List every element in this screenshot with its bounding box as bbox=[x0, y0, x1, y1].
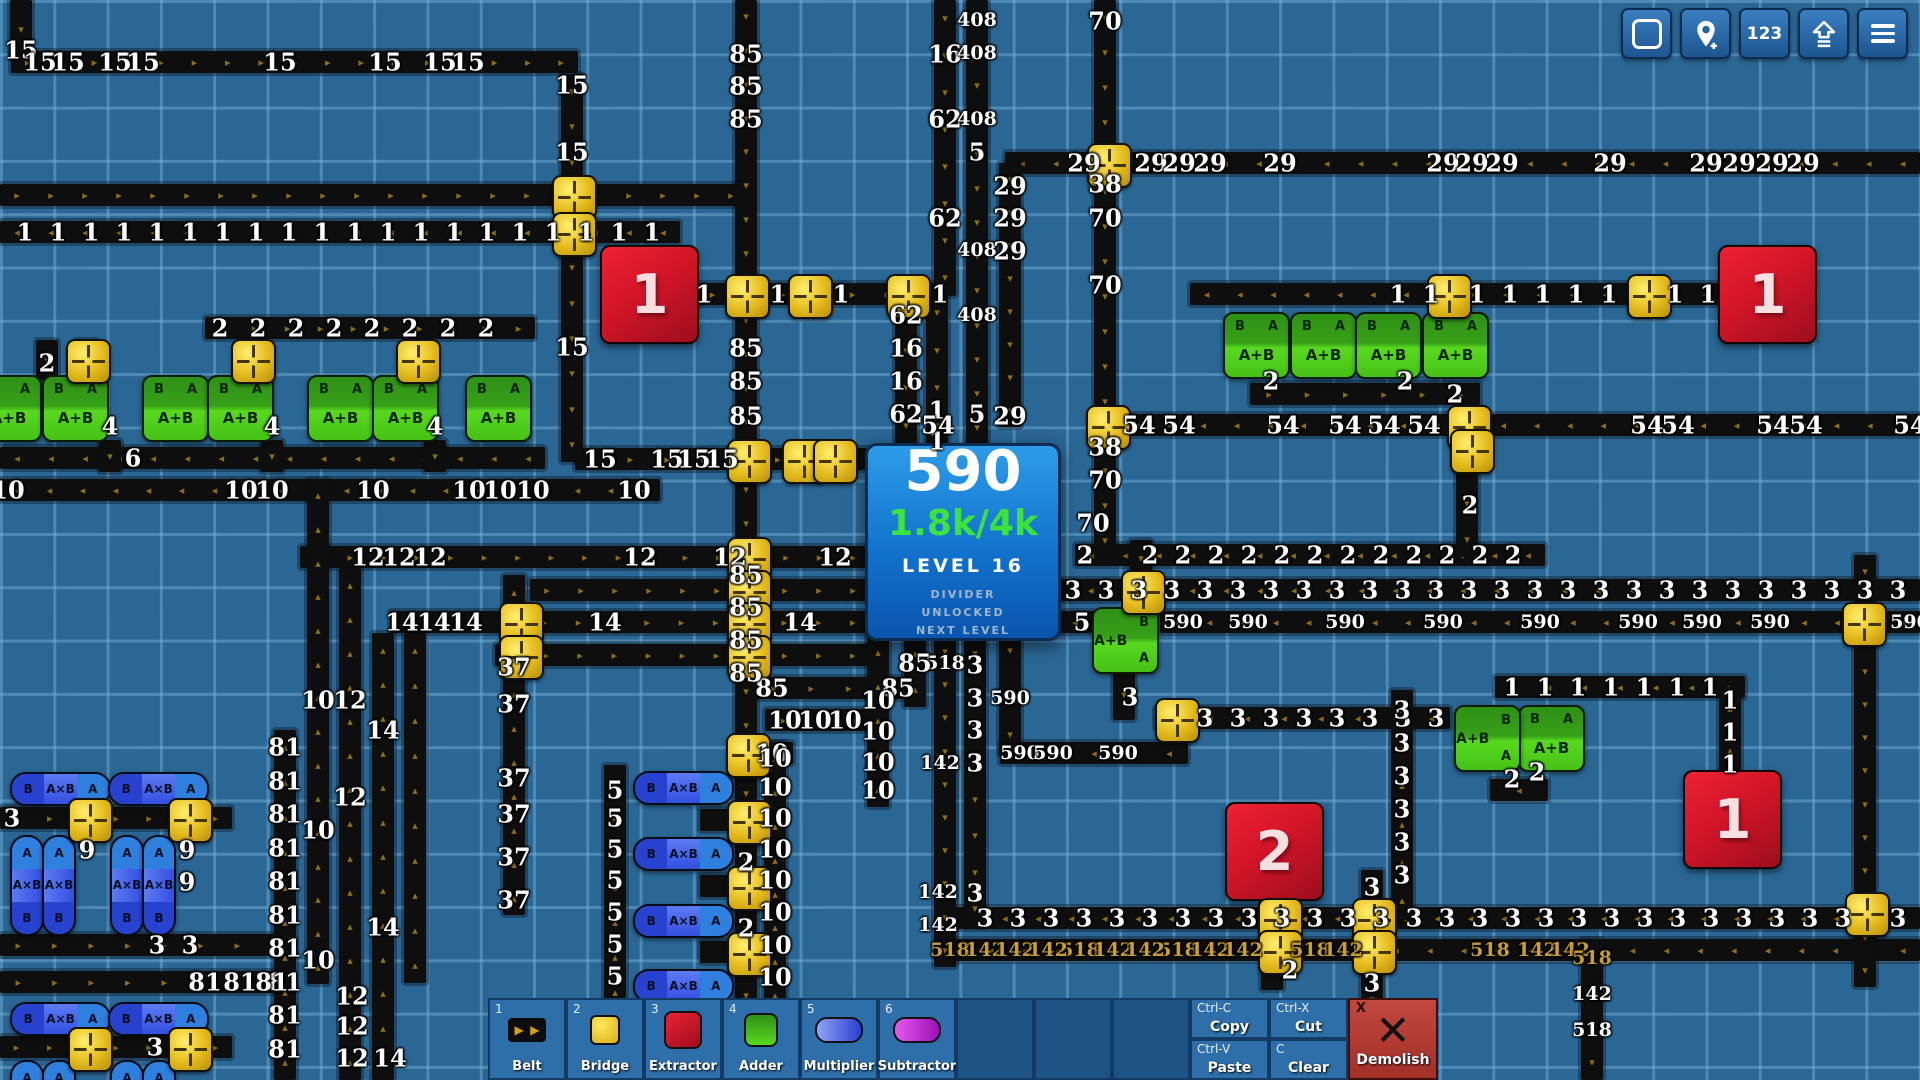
conveyor-belt[interactable]: ◂◂◂◂◂◂◂◂◂◂◂◂◂◂◂◂◂◂◂◂ bbox=[0, 479, 660, 501]
belt-value-label: 85 bbox=[729, 402, 762, 431]
belt-value-label: 1 bbox=[1601, 280, 1618, 309]
adder-block[interactable]: BAA+B bbox=[465, 375, 532, 442]
belt-value-label: 3 bbox=[1692, 576, 1709, 605]
belt-value-label: 3 bbox=[1010, 904, 1027, 933]
belt-value-label: 5 bbox=[607, 962, 624, 991]
adder-block[interactable]: BAA+B bbox=[307, 375, 374, 442]
multiplier-block[interactable]: AA×BB bbox=[42, 835, 76, 936]
belt-value-label: 10 bbox=[861, 776, 894, 805]
menu-button[interactable] bbox=[1857, 8, 1908, 59]
belt-value-label: 5 bbox=[969, 400, 986, 429]
belt-value-label: 1 bbox=[215, 218, 232, 247]
belt-value-label: 9 bbox=[179, 836, 196, 865]
belt-value-label: 3 bbox=[967, 716, 984, 745]
belt-value-label: 1 bbox=[149, 218, 166, 247]
belt-value-label: 408 bbox=[957, 304, 997, 326]
belt-value-label: 3 bbox=[1362, 576, 1379, 605]
clear-button[interactable]: C Clear bbox=[1269, 1039, 1348, 1080]
belt-value-label: 3 bbox=[1637, 904, 1654, 933]
multiplier-icon bbox=[815, 1017, 863, 1043]
belt-value-label: 9 bbox=[179, 868, 196, 897]
demolish-button[interactable]: X ✕ Demolish bbox=[1348, 998, 1438, 1080]
belt-value-label: 15 bbox=[583, 445, 616, 474]
conveyor-belt[interactable]: ▾ bbox=[424, 440, 446, 472]
belt-icon: ▶▶ bbox=[508, 1018, 546, 1042]
belt-value-label: 1 bbox=[1722, 686, 1739, 715]
belt-value-label: 3 bbox=[1373, 904, 1390, 933]
belt-value-label: 590 bbox=[1163, 611, 1203, 633]
bridge-icon bbox=[590, 1015, 620, 1045]
belt-value-label: 10 bbox=[301, 946, 334, 975]
conveyor-belt[interactable]: ▴▴▴▴▴▴▴▴▴▴▴▴▴ bbox=[372, 633, 394, 1080]
belt-value-label: 14 bbox=[366, 716, 399, 745]
belt-value-label: 37 bbox=[497, 843, 530, 872]
belt-value-label: 3 bbox=[4, 804, 21, 833]
belt-value-label: 10 bbox=[758, 963, 791, 992]
belt-value-label: 9 bbox=[79, 836, 96, 865]
belt-value-label: 1 bbox=[380, 218, 397, 247]
belt-value-label: 29 bbox=[1485, 149, 1518, 178]
belt-bridge[interactable] bbox=[1842, 602, 1887, 647]
cut-button[interactable]: Ctrl-X Cut bbox=[1269, 998, 1348, 1039]
belt-bridge[interactable] bbox=[788, 274, 833, 319]
belt-value-label: 14 bbox=[366, 913, 399, 942]
belt-value-label: 590 bbox=[1750, 611, 1790, 633]
belt-value-label: 14 bbox=[373, 1044, 406, 1073]
belt-value-label: 54 bbox=[1162, 411, 1195, 440]
conveyor-belt[interactable]: ▸▸▸▸▸▸▸▸ bbox=[0, 934, 292, 956]
belt-value-label: 1 bbox=[770, 280, 787, 309]
belt-value-label: 12 bbox=[335, 982, 368, 1011]
belt-value-label: 142 bbox=[1223, 939, 1263, 961]
belt-value-label: 15 bbox=[126, 48, 159, 77]
toggle-numbers-button[interactable]: 123 bbox=[1739, 8, 1790, 59]
belt-value-label: 2 bbox=[1077, 541, 1094, 570]
extractor-block[interactable]: 1 bbox=[600, 245, 699, 344]
belt-value-label: 3 bbox=[1394, 762, 1411, 791]
belt-value-label: 3 bbox=[1659, 576, 1676, 605]
belt-value-label: 2 bbox=[326, 314, 343, 343]
belt-value-label: 142 bbox=[920, 752, 960, 774]
adder-block[interactable]: A+BBA bbox=[1454, 705, 1521, 772]
belt-value-label: 6 bbox=[125, 444, 142, 473]
belt-value-label: 2 bbox=[1373, 541, 1390, 570]
belt-value-label: 3 bbox=[1604, 904, 1621, 933]
belt-value-label: 3 bbox=[1296, 704, 1313, 733]
belt-value-label: 10 bbox=[768, 706, 801, 735]
belt-value-label: 54 bbox=[1266, 411, 1299, 440]
belt-bridge[interactable] bbox=[68, 1027, 113, 1072]
belt-value-label: 85 bbox=[729, 626, 762, 655]
belt-bridge[interactable] bbox=[66, 339, 111, 384]
belt-value-label: 3 bbox=[967, 749, 984, 778]
multiplier-block[interactable]: BA×BA bbox=[633, 904, 734, 938]
belt-value-label: 3 bbox=[1890, 576, 1907, 605]
belt-value-label: 3 bbox=[1329, 576, 1346, 605]
copy-button[interactable]: Ctrl-C Copy bbox=[1190, 998, 1269, 1039]
belt-value-label: 1 bbox=[644, 218, 661, 247]
belt-value-label: 12 bbox=[413, 543, 446, 572]
belt-value-label: 590 bbox=[1682, 611, 1722, 633]
belt-value-label: 10 bbox=[255, 476, 288, 505]
conveyor-belt[interactable]: ▾ bbox=[261, 440, 283, 472]
hub-current-value: 590 bbox=[905, 444, 1022, 500]
belt-value-label: 37 bbox=[497, 653, 530, 682]
belt-value-label: 10 bbox=[301, 816, 334, 845]
hamburger-icon bbox=[1871, 24, 1895, 43]
belt-value-label: 14 bbox=[588, 608, 621, 637]
belt-value-label: 10 bbox=[758, 835, 791, 864]
belt-value-label: 518 bbox=[1572, 1019, 1612, 1041]
conveyor-belt[interactable]: ▾▾▾▾▾▾▾▾▾▾▾▾▾ bbox=[966, 0, 988, 445]
belt-value-label: 1 bbox=[347, 218, 364, 247]
belt-value-label: 10 bbox=[758, 773, 791, 802]
belt-value-label: 3 bbox=[1230, 576, 1247, 605]
belt-value-label: 2 bbox=[1241, 541, 1258, 570]
belt-value-label: 2 bbox=[1307, 541, 1324, 570]
belt-value-label: 10 bbox=[617, 476, 650, 505]
belt-bridge[interactable] bbox=[1155, 698, 1200, 743]
belt-value-label: 81 bbox=[268, 900, 301, 929]
belt-value-label: 5 bbox=[607, 835, 624, 864]
belt-value-label: 29 bbox=[993, 204, 1026, 233]
belt-value-label: 29 bbox=[993, 172, 1026, 201]
belt-value-label: 3 bbox=[1122, 683, 1139, 712]
belt-value-label: 3 bbox=[1230, 704, 1247, 733]
belt-value-label: 85 bbox=[729, 40, 762, 69]
belt-value-label: 10 bbox=[828, 706, 861, 735]
belt-value-label: 1 bbox=[932, 280, 949, 309]
adder-block[interactable]: BAA+B bbox=[142, 375, 209, 442]
multiplier-block[interactable]: AA×BB bbox=[10, 1060, 44, 1080]
level-hub[interactable]: 590 1.8k/4k LEVEL 16 DIVIDERUNLOCKEDNEXT… bbox=[865, 443, 1061, 641]
belt-value-label: 2 bbox=[1142, 541, 1159, 570]
belt-value-label: 12 bbox=[382, 543, 415, 572]
multiplier-block[interactable]: AA×BB bbox=[10, 835, 44, 936]
belt-value-label: 3 bbox=[1571, 904, 1588, 933]
belt-value-label: 3 bbox=[1208, 904, 1225, 933]
belt-value-label: 2 bbox=[402, 314, 419, 343]
belt-value-label: 10 bbox=[798, 706, 831, 735]
conveyor-belt[interactable]: ▸▸▸▸▸▸ bbox=[1250, 383, 1480, 405]
belt-bridge[interactable] bbox=[725, 274, 770, 319]
belt-value-label: 29 bbox=[1722, 149, 1755, 178]
belt-value-label: 1 bbox=[1469, 280, 1486, 309]
tool-bridge[interactable]: 2 Bridge bbox=[566, 998, 644, 1080]
belt-value-label: 2 bbox=[1439, 541, 1456, 570]
belt-value-label: 3 bbox=[1296, 576, 1313, 605]
belt-value-label: 10 bbox=[861, 686, 894, 715]
belt-value-label: 3 bbox=[1065, 576, 1082, 605]
belt-value-label: 3 bbox=[1394, 828, 1411, 857]
belt-value-label: 12 bbox=[333, 686, 366, 715]
tool-subtractor[interactable]: 6 Subtractor bbox=[878, 998, 956, 1080]
add-waypoint-button[interactable] bbox=[1680, 8, 1731, 59]
belt-bridge[interactable] bbox=[231, 339, 276, 384]
pin-plus-icon bbox=[1691, 19, 1721, 49]
conveyor-belt[interactable]: ▾ bbox=[99, 440, 121, 472]
belt-value-label: 54 bbox=[1893, 411, 1920, 440]
belt-value-label: 70 bbox=[1088, 466, 1121, 495]
belt-bridge[interactable] bbox=[1627, 274, 1672, 319]
extractor-icon bbox=[664, 1011, 702, 1049]
extractor-block[interactable]: 1 bbox=[1683, 770, 1782, 869]
belt-value-label: 3 bbox=[1394, 861, 1411, 890]
tool-belt[interactable]: 1 ▶▶ Belt bbox=[488, 998, 566, 1080]
frame-icon bbox=[1632, 19, 1662, 49]
belt-value-label: 1 bbox=[1537, 673, 1554, 702]
belt-value-label: 85 bbox=[898, 649, 931, 678]
belt-value-label: 15 bbox=[368, 48, 401, 77]
belt-value-label: 2 bbox=[1340, 541, 1357, 570]
belt-value-label: 54 bbox=[1756, 411, 1789, 440]
belt-value-label: 81 bbox=[223, 968, 256, 997]
clipboard-actions: Ctrl-C Copy Ctrl-X Cut Ctrl-V Paste C Cl… bbox=[1190, 998, 1348, 1080]
belt-value-label: 3 bbox=[1857, 576, 1874, 605]
belt-value-label: 12 bbox=[351, 543, 384, 572]
belt-value-label: 142 bbox=[1028, 939, 1068, 961]
belt-bridge[interactable] bbox=[813, 439, 858, 484]
numbers-icon: 123 bbox=[1747, 24, 1783, 44]
belt-value-label: 15 bbox=[555, 71, 588, 100]
belt-value-label: 3 bbox=[1109, 904, 1126, 933]
belt-value-label: 3 bbox=[1725, 576, 1742, 605]
belt-value-label: 408 bbox=[957, 108, 997, 130]
belt-value-label: 29 bbox=[993, 237, 1026, 266]
adder-block[interactable]: BAA+B bbox=[1290, 312, 1357, 379]
multiplier-block[interactable]: BA×BA bbox=[633, 837, 734, 871]
belt-value-label: 4 bbox=[102, 412, 119, 441]
belt-value-label: 85 bbox=[729, 367, 762, 396]
belt-value-label: 3 bbox=[1394, 696, 1411, 725]
belt-value-label: 3 bbox=[1274, 904, 1291, 933]
belt-value-label: 1 bbox=[1669, 673, 1686, 702]
belt-value-label: 3 bbox=[1043, 904, 1060, 933]
belt-value-label: 3 bbox=[1131, 576, 1148, 605]
belt-value-label: 54 bbox=[1407, 411, 1440, 440]
belt-value-label: 29 bbox=[1162, 149, 1195, 178]
belt-value-label: 590 bbox=[1618, 611, 1658, 633]
belt-value-label: 2 bbox=[364, 314, 381, 343]
belt-value-label: 3 bbox=[967, 684, 984, 713]
tool-multiplier[interactable]: 5 Multiplier bbox=[800, 998, 878, 1080]
belt-value-label: 37 bbox=[497, 690, 530, 719]
belt-value-label: 81 bbox=[268, 833, 301, 862]
paste-button[interactable]: Ctrl-V Paste bbox=[1190, 1039, 1269, 1080]
belt-value-label: 54 bbox=[1328, 411, 1361, 440]
conveyor-belt[interactable]: ▴▴▴▴▴▴▴▴▴▴▴▴▴▴▴ bbox=[307, 479, 329, 984]
belt-value-label: 3 bbox=[1076, 904, 1093, 933]
belt-value-label: 1 bbox=[1702, 673, 1719, 702]
belt-value-label: 10 bbox=[758, 931, 791, 960]
belt-value-label: 3 bbox=[1263, 576, 1280, 605]
adder-block[interactable]: A+BBA bbox=[1092, 607, 1159, 674]
belt-bridge[interactable] bbox=[396, 339, 441, 384]
belt-bridge[interactable] bbox=[168, 1027, 213, 1072]
belt-value-label: 3 bbox=[1164, 576, 1181, 605]
belt-value-label: 5 bbox=[607, 898, 624, 927]
belt-value-label: 2 bbox=[1472, 541, 1489, 570]
belt-value-label: 1 bbox=[248, 218, 265, 247]
belt-value-label: 1 bbox=[314, 218, 331, 247]
multiplier-block[interactable]: BA×BA bbox=[633, 771, 734, 805]
belt-value-label: 10 bbox=[452, 476, 485, 505]
belt-value-label: 1 bbox=[182, 218, 199, 247]
tool-extractor[interactable]: 3 Extractor bbox=[644, 998, 722, 1080]
conveyor-belt[interactable]: ▸▸▸▸▸▸▸▸▸▸▸▸▸▸▸▸▸▸▸▸▸▸ bbox=[0, 184, 748, 206]
belt-value-label: 10 bbox=[861, 748, 894, 777]
belt-value-label: 3 bbox=[1329, 704, 1346, 733]
belt-value-label: 1 bbox=[50, 218, 67, 247]
belt-value-label: 3 bbox=[1802, 904, 1819, 933]
belt-value-label: 3 bbox=[1307, 904, 1324, 933]
conveyor-belt[interactable]: ▾▾▾▾▾▾▾▾▾▾▾ bbox=[561, 74, 583, 462]
conveyor-belt[interactable]: ▸▸▸▸▸▸▸▸▸▸ bbox=[530, 579, 870, 601]
hub-unlock-text: DIVIDERUNLOCKEDNEXT LEVEL bbox=[916, 586, 1010, 640]
belt-value-label: 16 bbox=[889, 334, 922, 363]
belt-value-label: 1 bbox=[83, 218, 100, 247]
belt-value-label: 85 bbox=[729, 561, 762, 590]
multiplier-block[interactable]: AA×BB bbox=[110, 1060, 144, 1080]
extractor-block[interactable]: 1 bbox=[1718, 245, 1817, 344]
belt-value-label: 10 bbox=[861, 717, 894, 746]
belt-value-label: 70 bbox=[1076, 509, 1109, 538]
belt-value-label: 1 bbox=[833, 280, 850, 309]
belt-value-label: 16 bbox=[889, 367, 922, 396]
belt-value-label: 590 bbox=[1520, 611, 1560, 633]
belt-value-label: 3 bbox=[1736, 904, 1753, 933]
adder-block[interactable]: BAA+B bbox=[1223, 312, 1290, 379]
belt-value-label: 142 bbox=[1572, 983, 1612, 1005]
belt-value-label: 70 bbox=[1088, 204, 1121, 233]
adder-block[interactable]: BAA+B bbox=[1422, 312, 1489, 379]
conveyor-belt[interactable]: ▸▸▸▸▸▸▸▸▸▸▸ bbox=[495, 644, 870, 666]
belt-value-label: 15 bbox=[555, 333, 588, 362]
belt-value-label: 15 bbox=[263, 48, 296, 77]
belt-value-label: 12 bbox=[335, 1012, 368, 1041]
belt-value-label: 70 bbox=[1088, 271, 1121, 300]
belt-value-label: 2 bbox=[478, 314, 495, 343]
belt-value-label: 3 bbox=[1890, 904, 1907, 933]
extractor-block[interactable]: 2 bbox=[1225, 802, 1324, 901]
belt-value-label: 3 bbox=[1538, 904, 1555, 933]
hud-bar: 123 bbox=[1621, 8, 1908, 59]
belt-value-label: 2 bbox=[1282, 956, 1299, 985]
belt-value-label: 3 bbox=[1395, 576, 1412, 605]
adder-block[interactable]: BAA+B bbox=[0, 375, 42, 442]
belt-value-label: 1 bbox=[696, 280, 713, 309]
belt-value-label: 29 bbox=[1455, 149, 1488, 178]
belt-value-label: 54 bbox=[1367, 411, 1400, 440]
belt-value-label: 1 bbox=[1700, 280, 1717, 309]
belt-value-label: 1 bbox=[446, 218, 463, 247]
adder-block[interactable]: BAA+B bbox=[42, 375, 109, 442]
belt-value-label: 37 bbox=[497, 800, 530, 829]
belt-value-label: 2 bbox=[1447, 380, 1464, 409]
belt-value-label: 408 bbox=[957, 9, 997, 31]
belt-value-label: 14 bbox=[385, 608, 418, 637]
belt-value-label: 3 bbox=[1428, 704, 1445, 733]
belt-value-label: 3 bbox=[1364, 969, 1381, 998]
belt-value-label: 2 bbox=[440, 314, 457, 343]
belt-value-label: 62 bbox=[889, 301, 922, 330]
belt-value-label: 1 bbox=[611, 218, 628, 247]
belt-value-label: 590 bbox=[1890, 611, 1920, 633]
build-toolbar: 1 ▶▶ Belt 2 Bridge 3 Extractor 4 Adder 5… bbox=[488, 998, 1438, 1080]
belt-value-label: 29 bbox=[1689, 149, 1722, 178]
belt-value-label: 29 bbox=[1593, 149, 1626, 178]
belt-value-label: 1 bbox=[116, 218, 133, 247]
belt-value-label: 85 bbox=[729, 72, 762, 101]
belt-value-label: 3 bbox=[1560, 576, 1577, 605]
game-viewport[interactable]: ▸▸▸▸▸▸▸▸▸▸▸▸▸▸▸▸▸▸▸▸▸▸▸▸▸▸▸▸▸▸▸▸▸▸▸▸▸▸▸◂… bbox=[0, 0, 1920, 1080]
belt-value-label: 3 bbox=[1197, 576, 1214, 605]
belt-value-label: 3 bbox=[1439, 904, 1456, 933]
belt-value-label: 54 bbox=[1122, 411, 1155, 440]
belt-value-label: 10 bbox=[224, 476, 257, 505]
tool-adder[interactable]: 4 Adder bbox=[722, 998, 800, 1080]
belt-value-label: 3 bbox=[147, 1033, 164, 1062]
belt-value-label: 2 bbox=[1274, 541, 1291, 570]
belt-value-label: 14 bbox=[449, 608, 482, 637]
belt-value-label: 10 bbox=[483, 476, 516, 505]
belt-value-label: 10 bbox=[758, 744, 791, 773]
upgrades-button[interactable] bbox=[1798, 8, 1849, 59]
belt-value-label: 12 bbox=[818, 543, 851, 572]
belt-value-label: 590 bbox=[1325, 611, 1365, 633]
belt-value-label: 14 bbox=[417, 608, 450, 637]
belt-value-label: 3 bbox=[967, 651, 984, 680]
belt-value-label: 590 bbox=[1423, 611, 1463, 633]
belt-value-label: 81 bbox=[268, 800, 301, 829]
belt-value-label: 37 bbox=[497, 886, 530, 915]
belt-value-label: 2 bbox=[1263, 367, 1280, 396]
belt-value-label: 3 bbox=[1505, 904, 1522, 933]
belt-value-label: 3 bbox=[1098, 576, 1115, 605]
belt-value-label: 3 bbox=[1824, 576, 1841, 605]
belt-value-label: 2 bbox=[288, 314, 305, 343]
subtractor-icon bbox=[893, 1017, 941, 1043]
belt-value-label: 3 bbox=[1769, 904, 1786, 933]
belt-value-label: 3 bbox=[1340, 904, 1357, 933]
belt-value-label: 590 bbox=[1228, 611, 1268, 633]
belt-bridge[interactable] bbox=[1450, 429, 1495, 474]
belt-value-label: 29 bbox=[993, 402, 1026, 431]
belt-value-label: 29 bbox=[1067, 149, 1100, 178]
belt-value-label: 3 bbox=[1626, 576, 1643, 605]
conveyor-belt[interactable]: ▴▴▴▴▴▴▴▴▴▴ bbox=[404, 633, 426, 983]
belt-value-label: 3 bbox=[182, 931, 199, 960]
demolish-x-icon: ✕ bbox=[1375, 1010, 1410, 1052]
tool-slot-empty bbox=[1034, 998, 1112, 1080]
belt-value-label: 1 bbox=[1390, 280, 1407, 309]
belt-value-label: 3 bbox=[1527, 576, 1544, 605]
belt-value-label: 142 bbox=[1125, 939, 1165, 961]
belt-value-label: 70 bbox=[1088, 7, 1121, 36]
belt-value-label: 2 bbox=[1505, 541, 1522, 570]
belt-value-label: 408 bbox=[957, 239, 997, 261]
belt-value-label: 1 bbox=[578, 218, 595, 247]
multiplier-block[interactable]: AA×BB bbox=[110, 835, 144, 936]
select-tool-button[interactable] bbox=[1621, 8, 1672, 59]
belt-value-label: 2 bbox=[738, 914, 755, 943]
belt-value-label: 3 bbox=[1703, 904, 1720, 933]
belt-value-label: 3 bbox=[1428, 576, 1445, 605]
hub-level: LEVEL 16 bbox=[902, 555, 1024, 577]
belt-value-label: 142 bbox=[918, 881, 958, 903]
multiplier-block[interactable]: AA×BB bbox=[142, 835, 176, 936]
belt-value-label: 10 bbox=[356, 476, 389, 505]
